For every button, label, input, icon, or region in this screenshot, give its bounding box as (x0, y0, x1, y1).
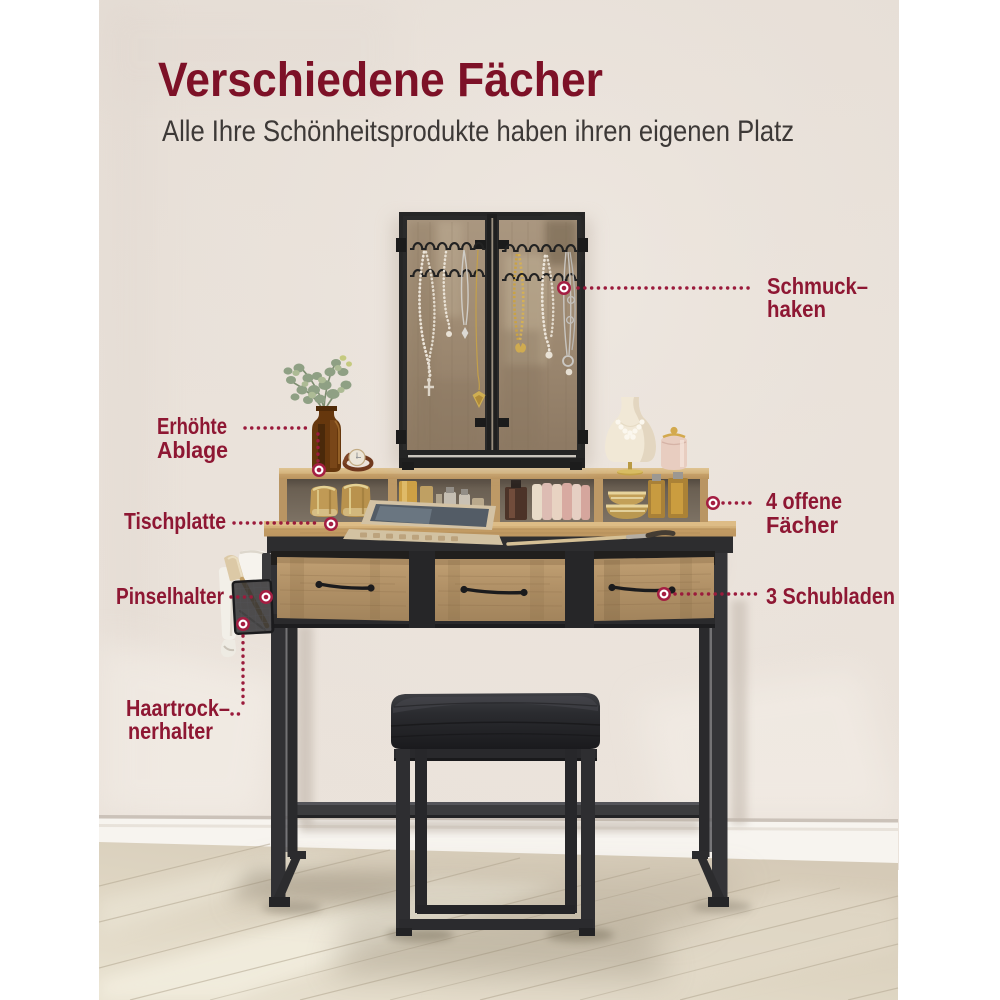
svg-text:haken: haken (767, 296, 826, 322)
svg-text:Fächer: Fächer (766, 512, 838, 538)
svg-text:Tischplatte: Tischplatte (124, 508, 226, 534)
svg-text:Alle Ihre Schönheitsprodukte h: Alle Ihre Schönheitsprodukte haben ihren… (162, 115, 794, 148)
svg-text:Erhöhte: Erhöhte (157, 413, 227, 439)
svg-text:3 Schubladen: 3 Schubladen (766, 583, 895, 609)
svg-text:4 offene: 4 offene (766, 488, 842, 514)
svg-text:Pinselhalter: Pinselhalter (116, 583, 224, 609)
svg-text:Ablage: Ablage (157, 437, 228, 463)
svg-text:Verschiedene Fächer: Verschiedene Fächer (158, 54, 603, 107)
svg-text:nerhalter: nerhalter (128, 718, 213, 744)
